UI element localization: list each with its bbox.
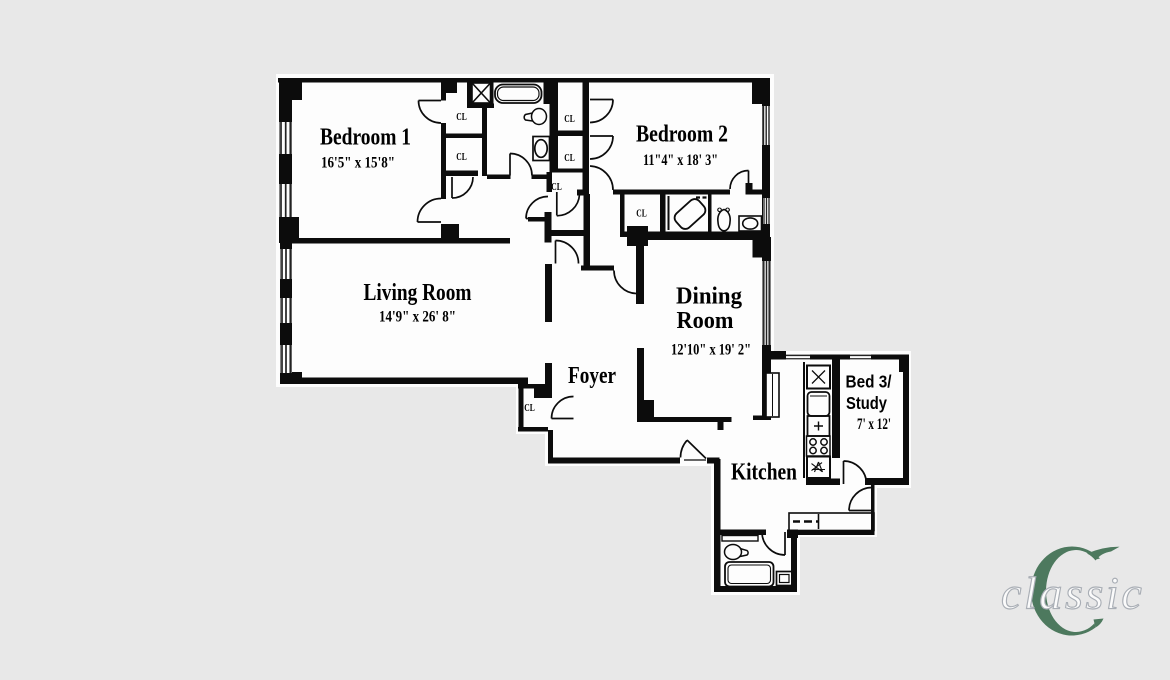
svg-text:classic: classic [1001, 568, 1144, 619]
svg-text:11"4" x 18' 3": 11"4" x 18' 3" [643, 152, 718, 169]
svg-text:Bedroom 1: Bedroom 1 [320, 125, 411, 151]
svg-text:Study: Study [846, 393, 887, 413]
svg-text:CL: CL [456, 111, 467, 123]
svg-text:CL: CL [564, 113, 575, 125]
svg-text:CL: CL [564, 152, 575, 164]
svg-text:CL: CL [551, 181, 562, 193]
svg-text:CL: CL [636, 208, 647, 220]
svg-text:Bed 3/: Bed 3/ [846, 372, 892, 392]
svg-text:Room: Room [677, 308, 734, 334]
svg-text:12'10" x 19' 2": 12'10" x 19' 2" [671, 342, 751, 359]
svg-text:Kitchen: Kitchen [731, 460, 797, 486]
svg-text:Bedroom 2: Bedroom 2 [636, 122, 728, 148]
svg-text:Dining: Dining [676, 284, 742, 310]
svg-text:16'5" x 15'8": 16'5" x 15'8" [321, 155, 395, 172]
svg-text:7' x 12': 7' x 12' [857, 416, 891, 433]
svg-text:Foyer: Foyer [568, 363, 616, 389]
svg-text:CL: CL [456, 151, 467, 163]
svg-text:CL: CL [524, 402, 535, 414]
svg-text:Living Room: Living Room [364, 280, 472, 306]
svg-text:14'9" x 26' 8": 14'9" x 26' 8" [379, 309, 456, 326]
